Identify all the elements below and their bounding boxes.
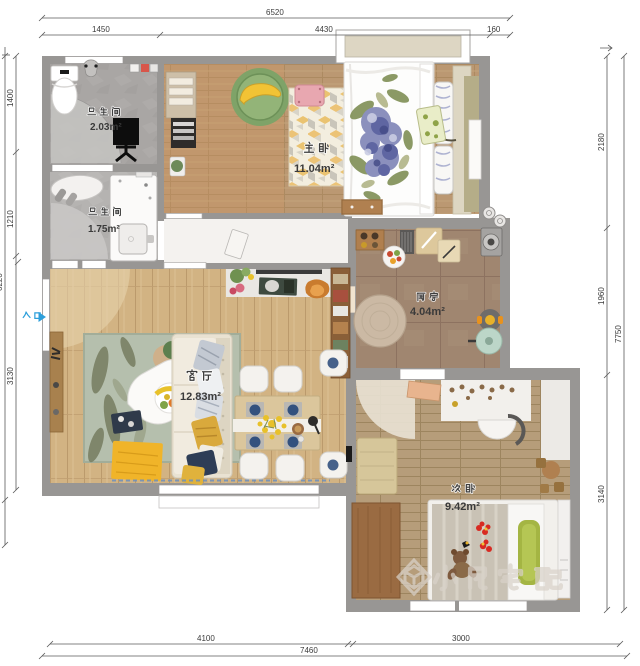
svg-text:1.75m²: 1.75m² <box>88 224 120 235</box>
svg-text:1400: 1400 <box>6 89 15 107</box>
svg-text:6520: 6520 <box>266 8 284 17</box>
svg-text:4100: 4100 <box>197 634 215 643</box>
svg-text:3000: 3000 <box>452 634 470 643</box>
svg-text:3140: 3140 <box>597 485 606 503</box>
svg-text:2180: 2180 <box>597 133 606 151</box>
svg-text:1960: 1960 <box>597 287 606 305</box>
svg-text:9.42m²: 9.42m² <box>445 501 480 513</box>
svg-text:4430: 4430 <box>315 25 333 34</box>
svg-text:1210: 1210 <box>6 210 15 228</box>
svg-text:2.03m²: 2.03m² <box>90 122 122 133</box>
svg-text:6220: 6220 <box>0 273 4 291</box>
svg-text:3130: 3130 <box>6 367 15 385</box>
svg-text:12.83m²: 12.83m² <box>180 391 221 403</box>
svg-text:4.04m²: 4.04m² <box>410 306 445 318</box>
svg-text:7750: 7750 <box>614 325 623 343</box>
svg-text:7460: 7460 <box>300 646 318 655</box>
svg-text:160: 160 <box>487 25 501 34</box>
svg-text:11.04m²: 11.04m² <box>294 163 335 175</box>
svg-text:1450: 1450 <box>92 25 110 34</box>
